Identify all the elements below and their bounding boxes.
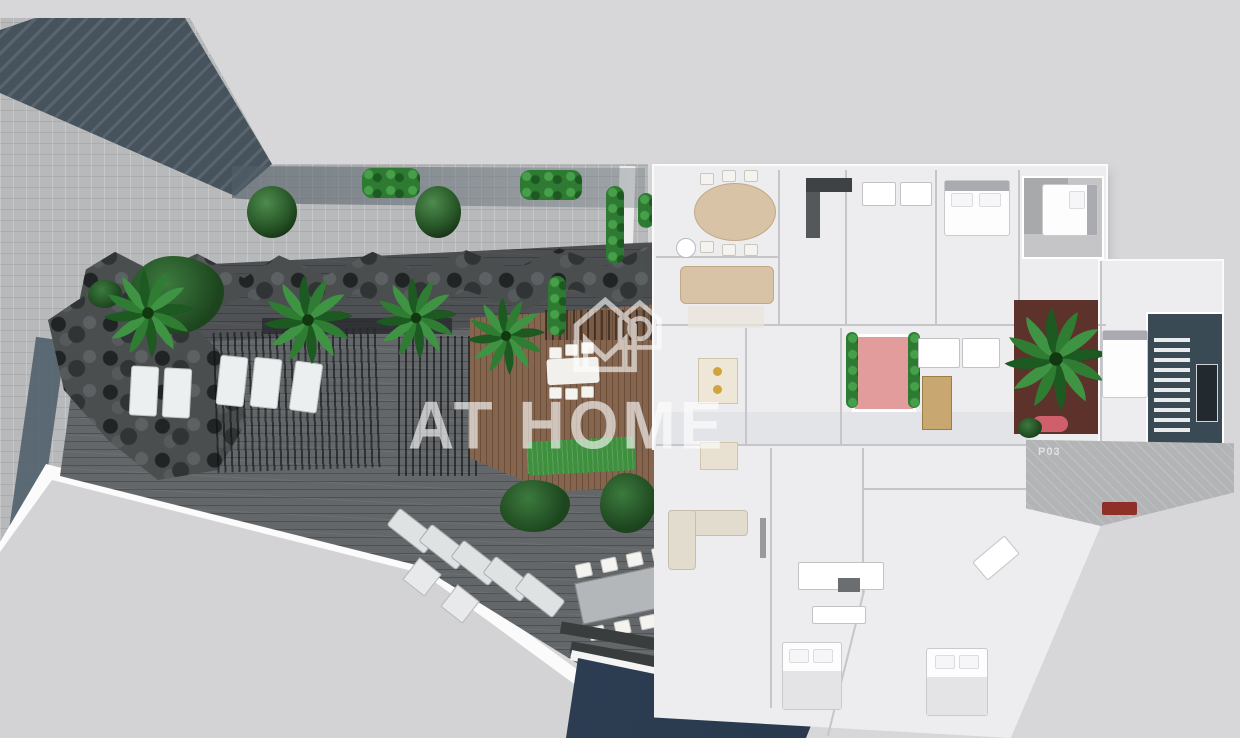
bathroom-fixture — [862, 182, 896, 206]
headboard — [1087, 185, 1097, 235]
round-bush-icon — [415, 186, 461, 238]
outdoor-chair — [575, 562, 594, 579]
outdoor-chair — [549, 347, 562, 359]
dining-chair — [744, 170, 758, 182]
elevator-shaft — [1196, 364, 1218, 422]
hedge — [638, 193, 654, 228]
blanket — [927, 677, 987, 715]
kitchen-counter — [806, 178, 852, 192]
bathroom-fixture — [962, 338, 1000, 368]
headboard — [1103, 331, 1147, 340]
tv-unit — [760, 518, 766, 558]
rug — [688, 306, 764, 328]
bed — [926, 648, 988, 716]
kitchen-counter — [806, 192, 820, 238]
wall — [935, 170, 937, 326]
pillow — [789, 649, 809, 663]
blanket — [783, 671, 841, 709]
palm-tree-icon — [372, 274, 460, 362]
kitchen-island — [812, 606, 866, 624]
table-setting — [713, 367, 722, 376]
pink-courtyard — [852, 334, 916, 412]
bed — [1102, 330, 1148, 398]
site-and-floorplan-rendering: P03 AT HOME — [0, 18, 1240, 738]
pillow — [1069, 191, 1085, 209]
potted-plant — [676, 238, 696, 258]
hedge — [520, 170, 582, 200]
dining-chair — [700, 173, 714, 185]
dining-chair — [700, 241, 714, 253]
hedge — [362, 168, 420, 198]
wall — [656, 256, 780, 258]
sofa — [668, 510, 696, 570]
wall — [845, 170, 847, 326]
wall — [770, 448, 772, 708]
bed — [944, 180, 1010, 236]
hedge — [606, 186, 624, 264]
wall — [778, 170, 780, 326]
sun-lounger — [215, 355, 248, 408]
dining-table — [694, 183, 776, 241]
wall — [840, 328, 842, 446]
bathroom-fixture — [900, 182, 932, 206]
bathroom-fixture — [918, 338, 960, 368]
bed — [782, 642, 842, 710]
stairwell — [1146, 312, 1224, 450]
bed — [1042, 184, 1098, 236]
parking-area: P03 — [1026, 438, 1234, 526]
dining-chair — [722, 170, 736, 182]
courtyard-plants — [846, 332, 858, 408]
wood-cabinet — [922, 376, 952, 430]
sun-lounger — [129, 365, 160, 416]
outdoor-chair — [600, 556, 619, 573]
outdoor-chair — [625, 551, 644, 568]
pillow — [935, 655, 955, 669]
headboard — [945, 181, 1009, 191]
watermark-brand-text: AT HOME — [408, 386, 828, 464]
parked-car — [1102, 502, 1137, 515]
palm-tree-icon — [464, 294, 548, 378]
stair-treads — [1154, 332, 1190, 432]
plot-label: P03 — [1038, 446, 1061, 458]
pillow — [813, 649, 833, 663]
pillow — [951, 193, 973, 207]
round-bush-icon — [247, 186, 297, 238]
house-with-m-logo-icon — [570, 286, 664, 376]
palm-tree-icon — [1000, 303, 1112, 415]
palm-tree-icon — [260, 272, 356, 368]
palm-tree-icon — [100, 265, 196, 361]
sofa — [680, 266, 774, 304]
pillow — [979, 193, 1001, 207]
sun-lounger — [162, 367, 193, 418]
dining-chair — [744, 244, 758, 256]
dining-chair — [722, 244, 736, 256]
hedge — [548, 276, 566, 336]
pillow — [959, 655, 979, 669]
appliance — [838, 578, 860, 592]
